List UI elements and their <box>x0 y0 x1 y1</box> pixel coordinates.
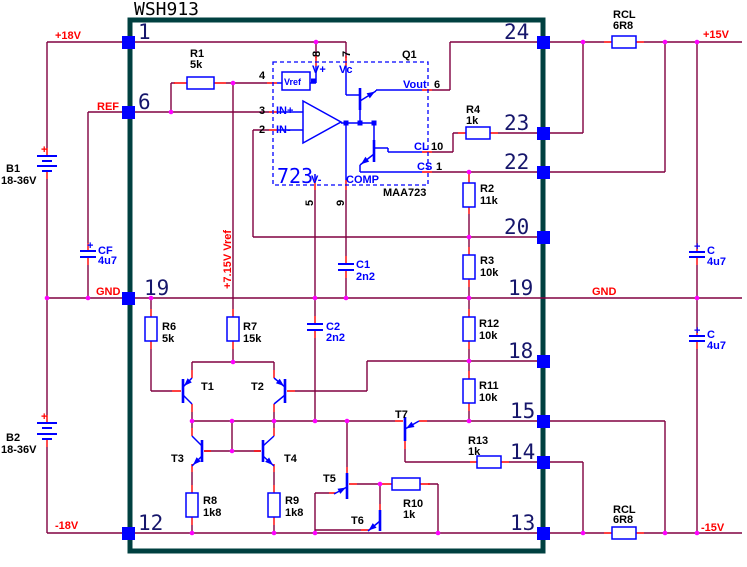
pad-pin19 <box>122 292 135 305</box>
net-vref-rail: +7.15V Vref <box>222 230 234 289</box>
ic-pinnum-7: 7 <box>341 51 353 57</box>
pad-pin24 <box>537 36 550 49</box>
ic-pinnum-5: 5 <box>304 200 316 206</box>
die-label-723: 723 <box>277 164 313 188</box>
b2-ref: B2 <box>6 432 20 444</box>
c1-ref: C1 <box>356 259 370 271</box>
ic-pin-comp: COMP <box>346 174 379 186</box>
r3-value: 10k <box>480 267 499 279</box>
r6-value: 5k <box>162 333 175 345</box>
net-plus15v: +15V <box>703 29 730 41</box>
t7-arrow-icon <box>406 422 415 429</box>
r7-ref: R7 <box>243 321 257 333</box>
resistor-r9 <box>268 493 280 517</box>
r8-ref: R8 <box>203 495 217 507</box>
part-number: MAA723 <box>383 187 426 199</box>
cf-plus: + <box>87 240 93 252</box>
pin-number-15: 15 <box>510 399 535 423</box>
resistor-r7 <box>227 317 239 341</box>
t2-label: T2 <box>251 381 264 393</box>
pad-pin22 <box>537 166 550 179</box>
r9-value: 1k8 <box>285 507 303 519</box>
pin-number-18: 18 <box>508 339 533 363</box>
t5-label: T5 <box>323 473 336 485</box>
r11-value: 10k <box>479 392 498 404</box>
net-gnd-right: GND <box>592 286 617 298</box>
c2-value: 2n2 <box>326 332 345 344</box>
r2-ref: R2 <box>480 183 494 195</box>
net-plus18v: +18V <box>55 30 82 42</box>
resistor-r13 <box>477 456 501 468</box>
net-minus18v: -18V <box>55 520 79 532</box>
pad-pin15 <box>537 415 550 428</box>
ic-node <box>372 121 377 126</box>
rcl-bottom-value: 6R8 <box>613 514 633 526</box>
b1-value: 18-36V <box>1 175 37 187</box>
schematic-canvas: WSH913 1 6 19 12 24 23 22 20 19 18 15 14… <box>0 0 747 567</box>
c-bottom-plus: + <box>694 325 700 337</box>
pad-pin6 <box>122 106 135 119</box>
t3-label: T3 <box>171 453 184 465</box>
pin-number-13: 13 <box>510 511 535 535</box>
ic-pin-inplus: IN+ <box>276 105 293 117</box>
r2-value: 11k <box>480 195 499 207</box>
pin-number-12: 12 <box>138 511 163 535</box>
ic-pinnum-1: 1 <box>436 161 442 173</box>
resistor-r6 <box>145 317 157 341</box>
pin-number-19-right: 19 <box>508 276 533 300</box>
b1-ref: B1 <box>6 163 20 175</box>
ic-pinnum-8: 8 <box>311 51 323 57</box>
r6-ref: R6 <box>162 321 176 333</box>
pad-pin18 <box>537 355 550 368</box>
ic-pin-cl: CL <box>414 141 429 153</box>
r1-value: 5k <box>190 59 203 71</box>
c-top-plus: + <box>694 241 700 253</box>
r8-value: 1k8 <box>203 507 221 519</box>
schematic-drawing: WSH913 1 6 19 12 24 23 22 20 19 18 15 14… <box>0 0 747 567</box>
pad-pin23 <box>537 127 550 140</box>
t4-label: T4 <box>284 453 298 465</box>
ic-node <box>344 121 349 126</box>
ic-pinnum-3: 3 <box>259 105 265 117</box>
pin-number-6: 6 <box>138 90 151 114</box>
resistor-r10 <box>392 478 420 490</box>
resistor-rcl-top <box>612 36 636 48</box>
pad-pin13 <box>537 527 550 540</box>
cf-value: 4u7 <box>98 255 117 267</box>
r9-ref: R9 <box>285 495 299 507</box>
r12-ref: R12 <box>479 318 499 330</box>
ic-pin-vout: Vout <box>403 79 427 91</box>
pin-number-14: 14 <box>510 440 535 464</box>
t7-label: T7 <box>395 409 408 421</box>
r12-value: 10k <box>479 330 498 342</box>
r3-ref: R3 <box>480 255 494 267</box>
ic-pin-cs: CS <box>417 161 432 173</box>
r13-value: 1k <box>468 446 481 458</box>
ic-pinnum-6: 6 <box>434 79 440 91</box>
t6-label: T6 <box>351 515 364 527</box>
ic-npn-top-arrow-icon <box>367 92 375 99</box>
ic-node <box>358 121 363 126</box>
pin-number-1: 1 <box>138 20 151 44</box>
ic-pin-inminus: IN- <box>276 124 291 136</box>
pad-pin1 <box>122 36 135 49</box>
resistor-rcl-bottom <box>612 527 636 539</box>
ic-pin-vplus: V+ <box>312 64 326 76</box>
ic-pinnum-2: 2 <box>259 124 265 136</box>
pin-number-20: 20 <box>504 215 529 239</box>
opamp-triangle <box>303 101 341 143</box>
net-gnd-left: GND <box>96 286 121 298</box>
pad-pin20 <box>537 231 550 244</box>
ic-pin-vc: Vc <box>339 64 352 76</box>
net-ref: REF <box>97 101 119 113</box>
r11-ref: R11 <box>479 380 499 392</box>
b1-plus: + <box>41 144 47 156</box>
b2-value: 18-36V <box>1 444 37 456</box>
c-top-value: 4u7 <box>707 256 726 268</box>
q1-designator: Q1 <box>402 49 417 61</box>
ic-pinnum-10: 10 <box>431 141 443 153</box>
c-bottom-value: 4u7 <box>707 340 726 352</box>
resistor-r12 <box>463 317 475 341</box>
rcl-top-value: 6R8 <box>613 20 633 32</box>
t5-arrow-icon <box>338 488 347 494</box>
battery-labels: B1 18-36V + B2 18-36V + <box>1 144 47 456</box>
resistor-r4 <box>466 127 490 139</box>
pad-pin12 <box>122 527 135 540</box>
resistor-r8 <box>186 493 198 517</box>
pin-number-19-left: 19 <box>144 276 169 300</box>
ic-pinnum-9: 9 <box>335 200 347 206</box>
pin-number-24: 24 <box>504 20 529 44</box>
ic-pinnum-4: 4 <box>259 70 266 82</box>
pin-number-23: 23 <box>504 111 529 135</box>
r4-value: 1k <box>466 115 479 127</box>
capacitor-labels: C1 2n2 C2 2n2 + CF 4u7 + C 4u7 + C 4u7 <box>87 240 726 352</box>
pin-number-22: 22 <box>504 150 529 174</box>
b2-plus: + <box>41 411 47 423</box>
resistor-r2 <box>463 183 475 207</box>
vref-block-label: Vref <box>284 77 302 87</box>
resistor-r3 <box>463 255 475 279</box>
t1-label: T1 <box>201 381 214 393</box>
ic-node <box>311 79 316 84</box>
r7-value: 15k <box>243 333 262 345</box>
module-title: WSH913 <box>134 0 199 20</box>
r10-value: 1k <box>403 509 416 521</box>
net-minus15v: -15V <box>701 522 725 534</box>
c1-value: 2n2 <box>356 271 375 283</box>
resistor-r1 <box>187 77 214 89</box>
ic-pin-vminus: V- <box>311 174 322 186</box>
pad-pin14 <box>537 456 550 469</box>
resistor-r11 <box>463 379 475 403</box>
